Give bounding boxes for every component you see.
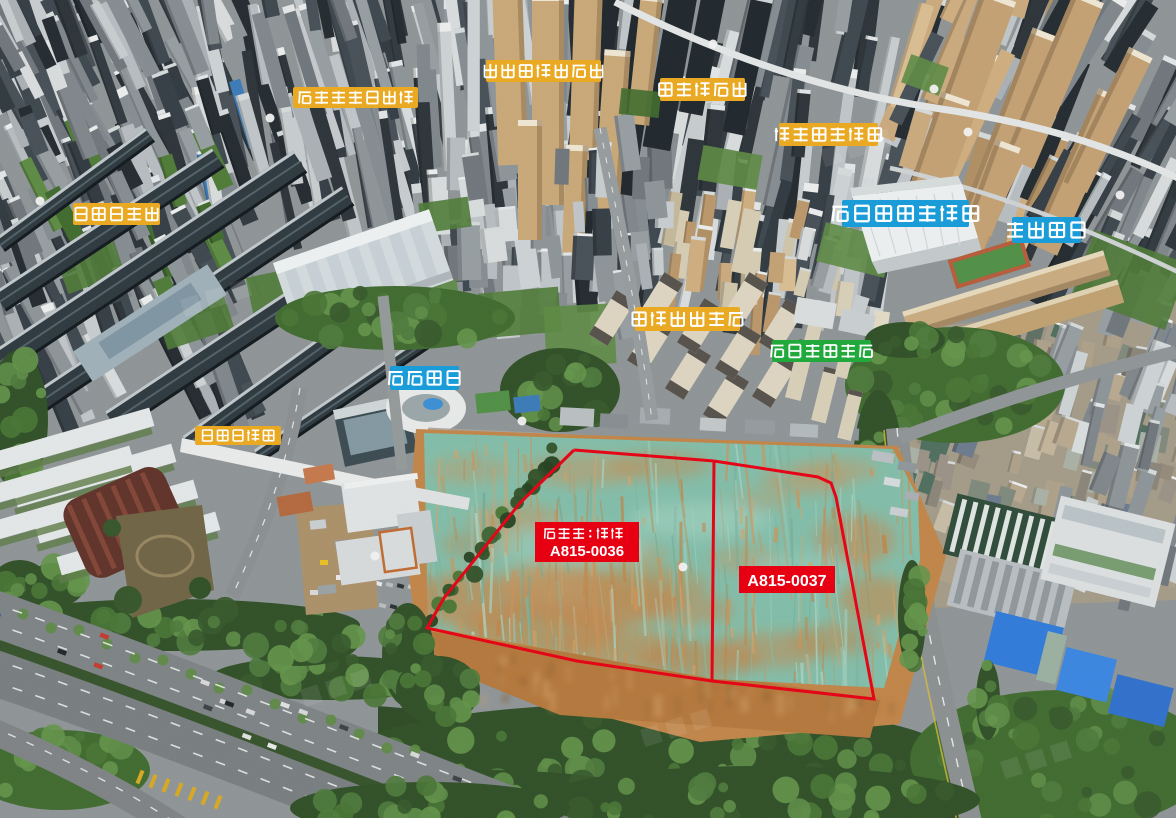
svg-text:A815-0036: A815-0036	[550, 543, 624, 560]
svg-text:A815-0037: A815-0037	[747, 573, 826, 590]
